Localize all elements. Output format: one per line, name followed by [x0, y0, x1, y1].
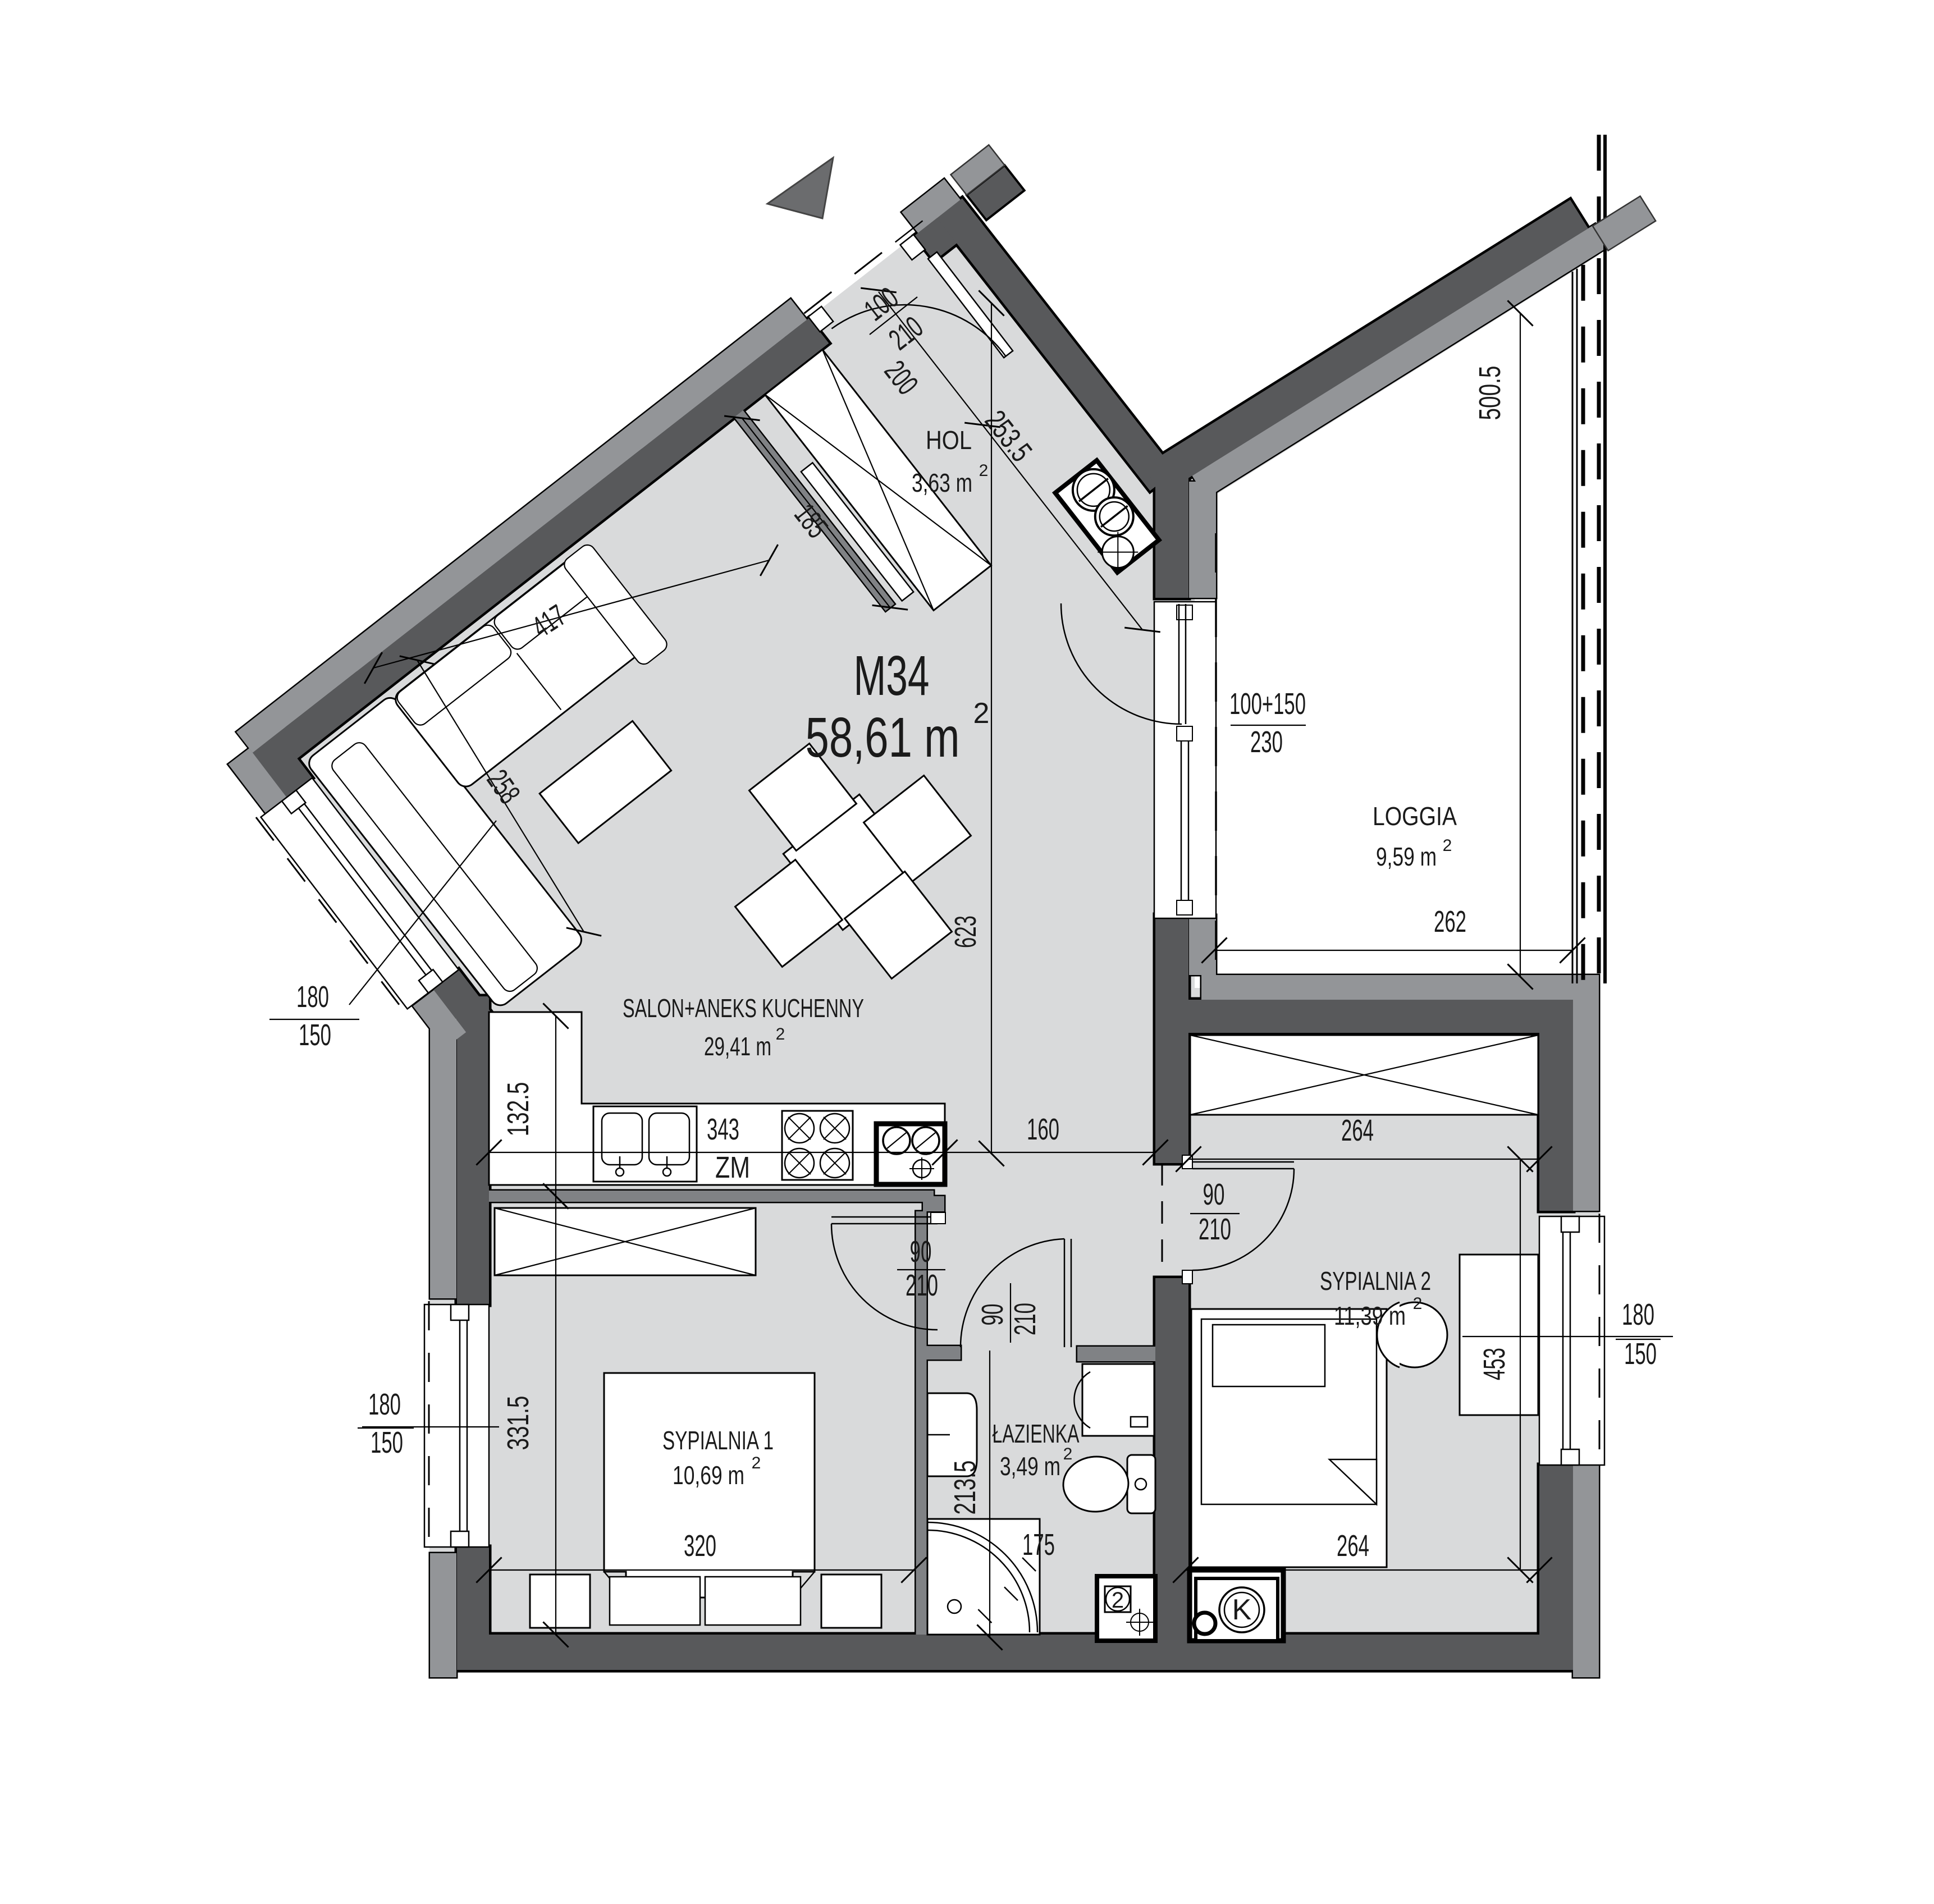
svg-text:2: 2 — [973, 697, 990, 730]
svg-text:262: 262 — [1434, 905, 1466, 939]
svg-text:150: 150 — [371, 1426, 403, 1459]
svg-text:175: 175 — [1022, 1528, 1055, 1562]
svg-text:SALON+ANEKS KUCHENNY: SALON+ANEKS KUCHENNY — [623, 994, 864, 1023]
svg-text:90: 90 — [976, 1304, 1009, 1326]
svg-text:320: 320 — [684, 1529, 716, 1563]
svg-text:230: 230 — [1250, 725, 1283, 759]
svg-text:453: 453 — [1478, 1348, 1511, 1380]
svg-text:29,41 m: 29,41 m — [704, 1032, 771, 1061]
svg-text:213.5: 213.5 — [948, 1461, 982, 1515]
svg-text:343: 343 — [707, 1113, 739, 1146]
svg-text:11,39 m: 11,39 m — [1334, 1301, 1406, 1330]
svg-text:SYPIALNIA 2: SYPIALNIA 2 — [1320, 1266, 1431, 1296]
svg-text:180: 180 — [296, 980, 329, 1014]
svg-text:HOL: HOL — [926, 425, 972, 455]
svg-text:264: 264 — [1341, 1114, 1374, 1147]
svg-text:180: 180 — [1622, 1298, 1654, 1331]
svg-text:90: 90 — [1203, 1178, 1225, 1211]
svg-text:SYPIALNIA 1: SYPIALNIA 1 — [662, 1426, 774, 1455]
svg-text:623: 623 — [949, 916, 982, 948]
svg-text:2: 2 — [1413, 1294, 1423, 1313]
svg-text:264: 264 — [1337, 1529, 1369, 1563]
svg-text:150: 150 — [299, 1018, 331, 1052]
svg-text:K: K — [1232, 1594, 1252, 1626]
svg-text:90: 90 — [910, 1235, 932, 1269]
svg-text:10,69 m: 10,69 m — [673, 1461, 744, 1490]
svg-text:132.5: 132.5 — [501, 1082, 535, 1137]
svg-text:210: 210 — [906, 1269, 938, 1302]
svg-text:100+150: 100+150 — [1229, 687, 1306, 721]
svg-text:2: 2 — [979, 461, 989, 480]
svg-text:2: 2 — [1112, 1588, 1124, 1613]
svg-text:ZM: ZM — [715, 1151, 750, 1184]
svg-text:210: 210 — [1008, 1303, 1042, 1335]
svg-text:9,59 m: 9,59 m — [1376, 842, 1437, 871]
svg-text:58,61 m: 58,61 m — [806, 706, 960, 769]
svg-text:160: 160 — [1027, 1113, 1059, 1146]
svg-text:2: 2 — [1443, 836, 1452, 855]
svg-text:M34: M34 — [854, 644, 930, 707]
svg-text:ŁAZIENKA: ŁAZIENKA — [993, 1419, 1080, 1448]
svg-text:180: 180 — [368, 1388, 401, 1421]
svg-text:210: 210 — [1199, 1212, 1231, 1246]
svg-text:3,49 m: 3,49 m — [1000, 1452, 1060, 1481]
svg-text:2: 2 — [752, 1454, 761, 1472]
svg-text:2: 2 — [1063, 1445, 1073, 1463]
svg-text:2: 2 — [776, 1025, 785, 1043]
svg-text:331.5: 331.5 — [501, 1396, 535, 1450]
svg-text:3,63 m: 3,63 m — [912, 468, 972, 497]
svg-text:500.5: 500.5 — [1473, 366, 1507, 420]
svg-text:150: 150 — [1624, 1337, 1657, 1371]
svg-text:LOGGIA: LOGGIA — [1373, 802, 1457, 831]
